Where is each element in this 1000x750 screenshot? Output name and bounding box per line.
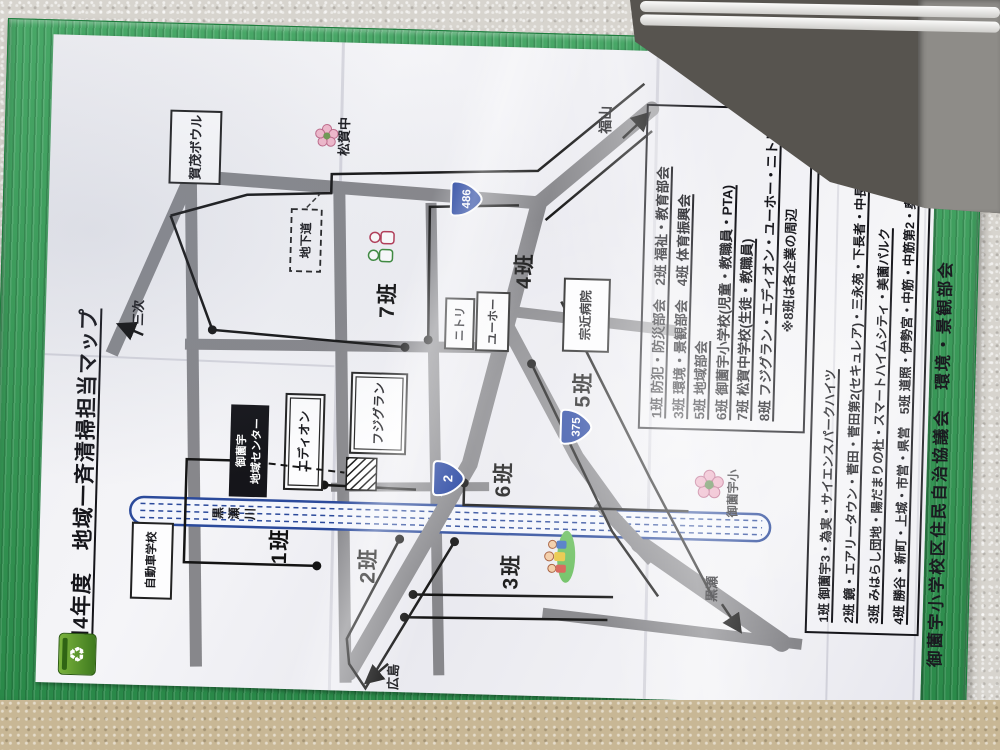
legend-areas: 1班 御薗宇3・為実・サイエンスパークハイツ 2班 鏡・エアリータウン・菅田・菅… — [805, 108, 934, 636]
recycle-glyph: ♻ — [65, 645, 90, 664]
children-illustration-bottom — [544, 530, 576, 583]
kamo-bowl-label: 賀茂ボウル — [188, 115, 205, 181]
group3-map-label: 3班 — [499, 553, 523, 590]
recycle-bin-icon: ♻ — [58, 633, 97, 676]
river-char-3: 川 — [243, 508, 257, 521]
group4-map-label: 4班 — [513, 252, 537, 289]
route-486-shield: 486 — [451, 181, 482, 216]
svg-text:2: 2 — [440, 475, 455, 483]
community-center-label-1: 御薗宇 — [234, 434, 249, 468]
matsuga-school-icon — [315, 124, 338, 146]
svg-text:375: 375 — [571, 417, 584, 437]
misonou-school-icon — [695, 470, 724, 498]
green-display-board: 486 2 375 — [0, 18, 985, 739]
group2-map-label: 2班 — [356, 547, 380, 584]
group7-map-label: 7班 — [376, 281, 400, 318]
legend-committees: 1班 防犯・防災部会 2班 福祉・教育部会 3班 環境・景観部会 4班 体育振興… — [638, 104, 814, 434]
bottom-wall — [0, 700, 1000, 750]
fukuyama-label: 福山 — [597, 106, 614, 135]
river-char-1: 黒 — [211, 507, 225, 519]
fujigran-label: フジグラン — [370, 382, 387, 445]
munechika-hospital-label: 宗近病院 — [577, 290, 593, 341]
river-char-2: 瀬 — [226, 507, 241, 520]
children-illustration-top — [368, 231, 394, 262]
nitori-label: ニトリ — [453, 306, 467, 341]
miyoshi-label: 三次 — [130, 300, 146, 326]
group5-map-label: 5班 — [571, 371, 595, 408]
route-375-shield: 375 — [560, 410, 591, 445]
underpass-leader-line — [307, 193, 320, 207]
matsuga-chu-label: 松賀中 — [336, 117, 352, 156]
yuho-label: ユーホー — [486, 298, 500, 344]
underpass-label: 地下道 — [297, 222, 313, 258]
edion-label: エディオン — [295, 410, 312, 472]
hiroshima-label: 広島 — [385, 664, 401, 690]
community-center-building — [346, 458, 377, 491]
misonou-sho-label: 御薗宇小 — [724, 469, 740, 518]
group6-map-label: 6班 — [492, 460, 516, 497]
group1-map-label: 1班 — [268, 527, 292, 564]
photo-of-map-poster: 486 2 375 — [0, 0, 1000, 750]
poster-paper: 486 2 375 — [35, 34, 938, 706]
svg-text:486: 486 — [461, 189, 474, 209]
kurose-label: 黒瀬 — [704, 576, 720, 602]
